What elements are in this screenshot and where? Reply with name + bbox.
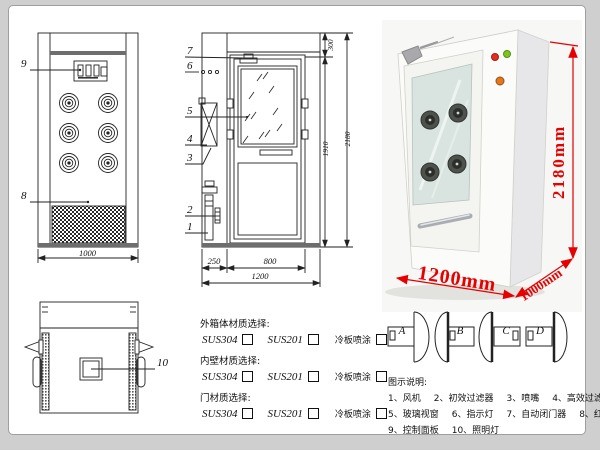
material-option-label: 冷板喷涂 — [335, 407, 371, 420]
material-checkbox[interactable] — [376, 334, 387, 345]
side-door-height-dim: 1910 — [322, 134, 330, 164]
control-panel — [74, 61, 107, 81]
part-label-6: 6 — [187, 61, 193, 72]
photo-height-dim: 2180mm — [549, 87, 569, 237]
legend-item: 5、玻璃视窗 — [388, 407, 439, 420]
door-swing-option-d — [524, 306, 568, 368]
material-checkbox[interactable] — [376, 371, 387, 382]
material-option-label: SUS304 — [202, 408, 237, 420]
side-total-width-dim: 1200 — [240, 272, 280, 281]
material-option-label: 冷板喷涂 — [335, 370, 371, 383]
air-grille — [52, 206, 125, 243]
side-left-section-dim: 250 — [196, 257, 232, 266]
legend-item: 1、风机 — [388, 391, 421, 404]
legend-row: 5、玻璃视窗 6、指示灯 7、自动闭门器 8、红外线感应器 — [388, 407, 588, 420]
front-width-dim: 1000 — [60, 249, 115, 258]
material-checkbox[interactable] — [308, 408, 319, 419]
legend-item: 3、喷嘴 — [506, 391, 539, 404]
part-label-5: 5 — [187, 106, 193, 117]
legend-item: 9、控制面板 — [388, 423, 439, 436]
part-label-2: 2 — [187, 205, 193, 216]
image-frame: 9 8 1000 — [0, 0, 600, 450]
side-total-height-dim: 2180 — [344, 124, 352, 154]
side-top-dim: 300 — [327, 32, 335, 58]
material-option-label: SUS201 — [267, 334, 302, 346]
material-checkbox[interactable] — [308, 371, 319, 382]
legend-item: 10、照明灯 — [452, 423, 499, 436]
door-swing-option-b — [432, 306, 476, 368]
material-option-row: SUS304 SUS201 冷板喷涂 — [202, 370, 395, 383]
legend-item: 7、自动闭门器 — [506, 407, 566, 420]
material-option-label: SUS201 — [267, 408, 302, 420]
door-swing-letter-b: B — [452, 325, 468, 337]
part-label-1: 1 — [187, 222, 193, 233]
legend-row: 1、风机 2、初效过滤器 3、喷嘴 4、高效过滤器 — [388, 391, 588, 404]
door-swing-letter-a: A — [394, 325, 410, 337]
legend-item: 4、高效过滤器 — [552, 391, 600, 404]
material-checkbox[interactable] — [308, 334, 319, 345]
legend-item: 2、初效过滤器 — [434, 391, 494, 404]
door-swing-letter-c: C — [498, 325, 514, 337]
material-option-label: 冷板喷涂 — [335, 333, 371, 346]
material-option-row: SUS304 SUS201 冷板喷涂 — [202, 407, 395, 420]
side-door-width-dim: 800 — [250, 257, 290, 266]
part-label-10: 10 — [157, 358, 168, 369]
door-swing-letter-d: D — [532, 325, 548, 337]
legend-row: 9、控制面板 10、照明灯 — [388, 423, 588, 436]
part-label-4: 4 — [187, 134, 193, 145]
material-section-title: 内壁材质选择: — [200, 353, 395, 367]
indicator-green — [504, 51, 511, 58]
legend: 图示说明: 1、风机 2、初效过滤器 3、喷嘴 4、高效过滤器 5、玻璃视窗 6… — [388, 375, 588, 436]
part-label-control-panel: 9 — [21, 59, 27, 70]
legend-item: 8、红外线感应器 — [579, 407, 600, 420]
top-view-drawing — [15, 295, 215, 425]
airflow-arrow-left — [25, 340, 43, 354]
side-view-drawing — [185, 25, 365, 295]
door-swing-option-c — [478, 306, 522, 368]
front-view-drawing — [30, 25, 150, 275]
material-checkbox[interactable] — [376, 408, 387, 419]
material-option-label: SUS201 — [267, 371, 302, 383]
material-option-row: SUS304 SUS201 冷板喷涂 — [202, 333, 395, 346]
part-label-3: 3 — [187, 153, 193, 164]
part-label-7: 7 — [187, 46, 193, 57]
material-section-title: 门材质选择: — [200, 390, 395, 404]
legend-item: 6、指示灯 — [452, 407, 494, 420]
indicator-red — [492, 54, 499, 61]
material-section-title: 外箱体材质选择: — [200, 316, 395, 330]
material-checkbox[interactable] — [242, 334, 253, 345]
airflow-arrow-right — [135, 340, 153, 354]
material-checkbox[interactable] — [242, 371, 253, 382]
material-option-label: SUS304 — [202, 334, 237, 346]
material-option-label: SUS304 — [202, 371, 237, 383]
legend-title: 图示说明: — [388, 375, 588, 388]
material-selection: 外箱体材质选择: SUS304 SUS201 冷板喷涂 内壁材质选择: SUS3… — [200, 316, 395, 427]
material-checkbox[interactable] — [242, 408, 253, 419]
indicator-amber — [496, 77, 504, 85]
part-label-grille: 8 — [21, 191, 27, 202]
